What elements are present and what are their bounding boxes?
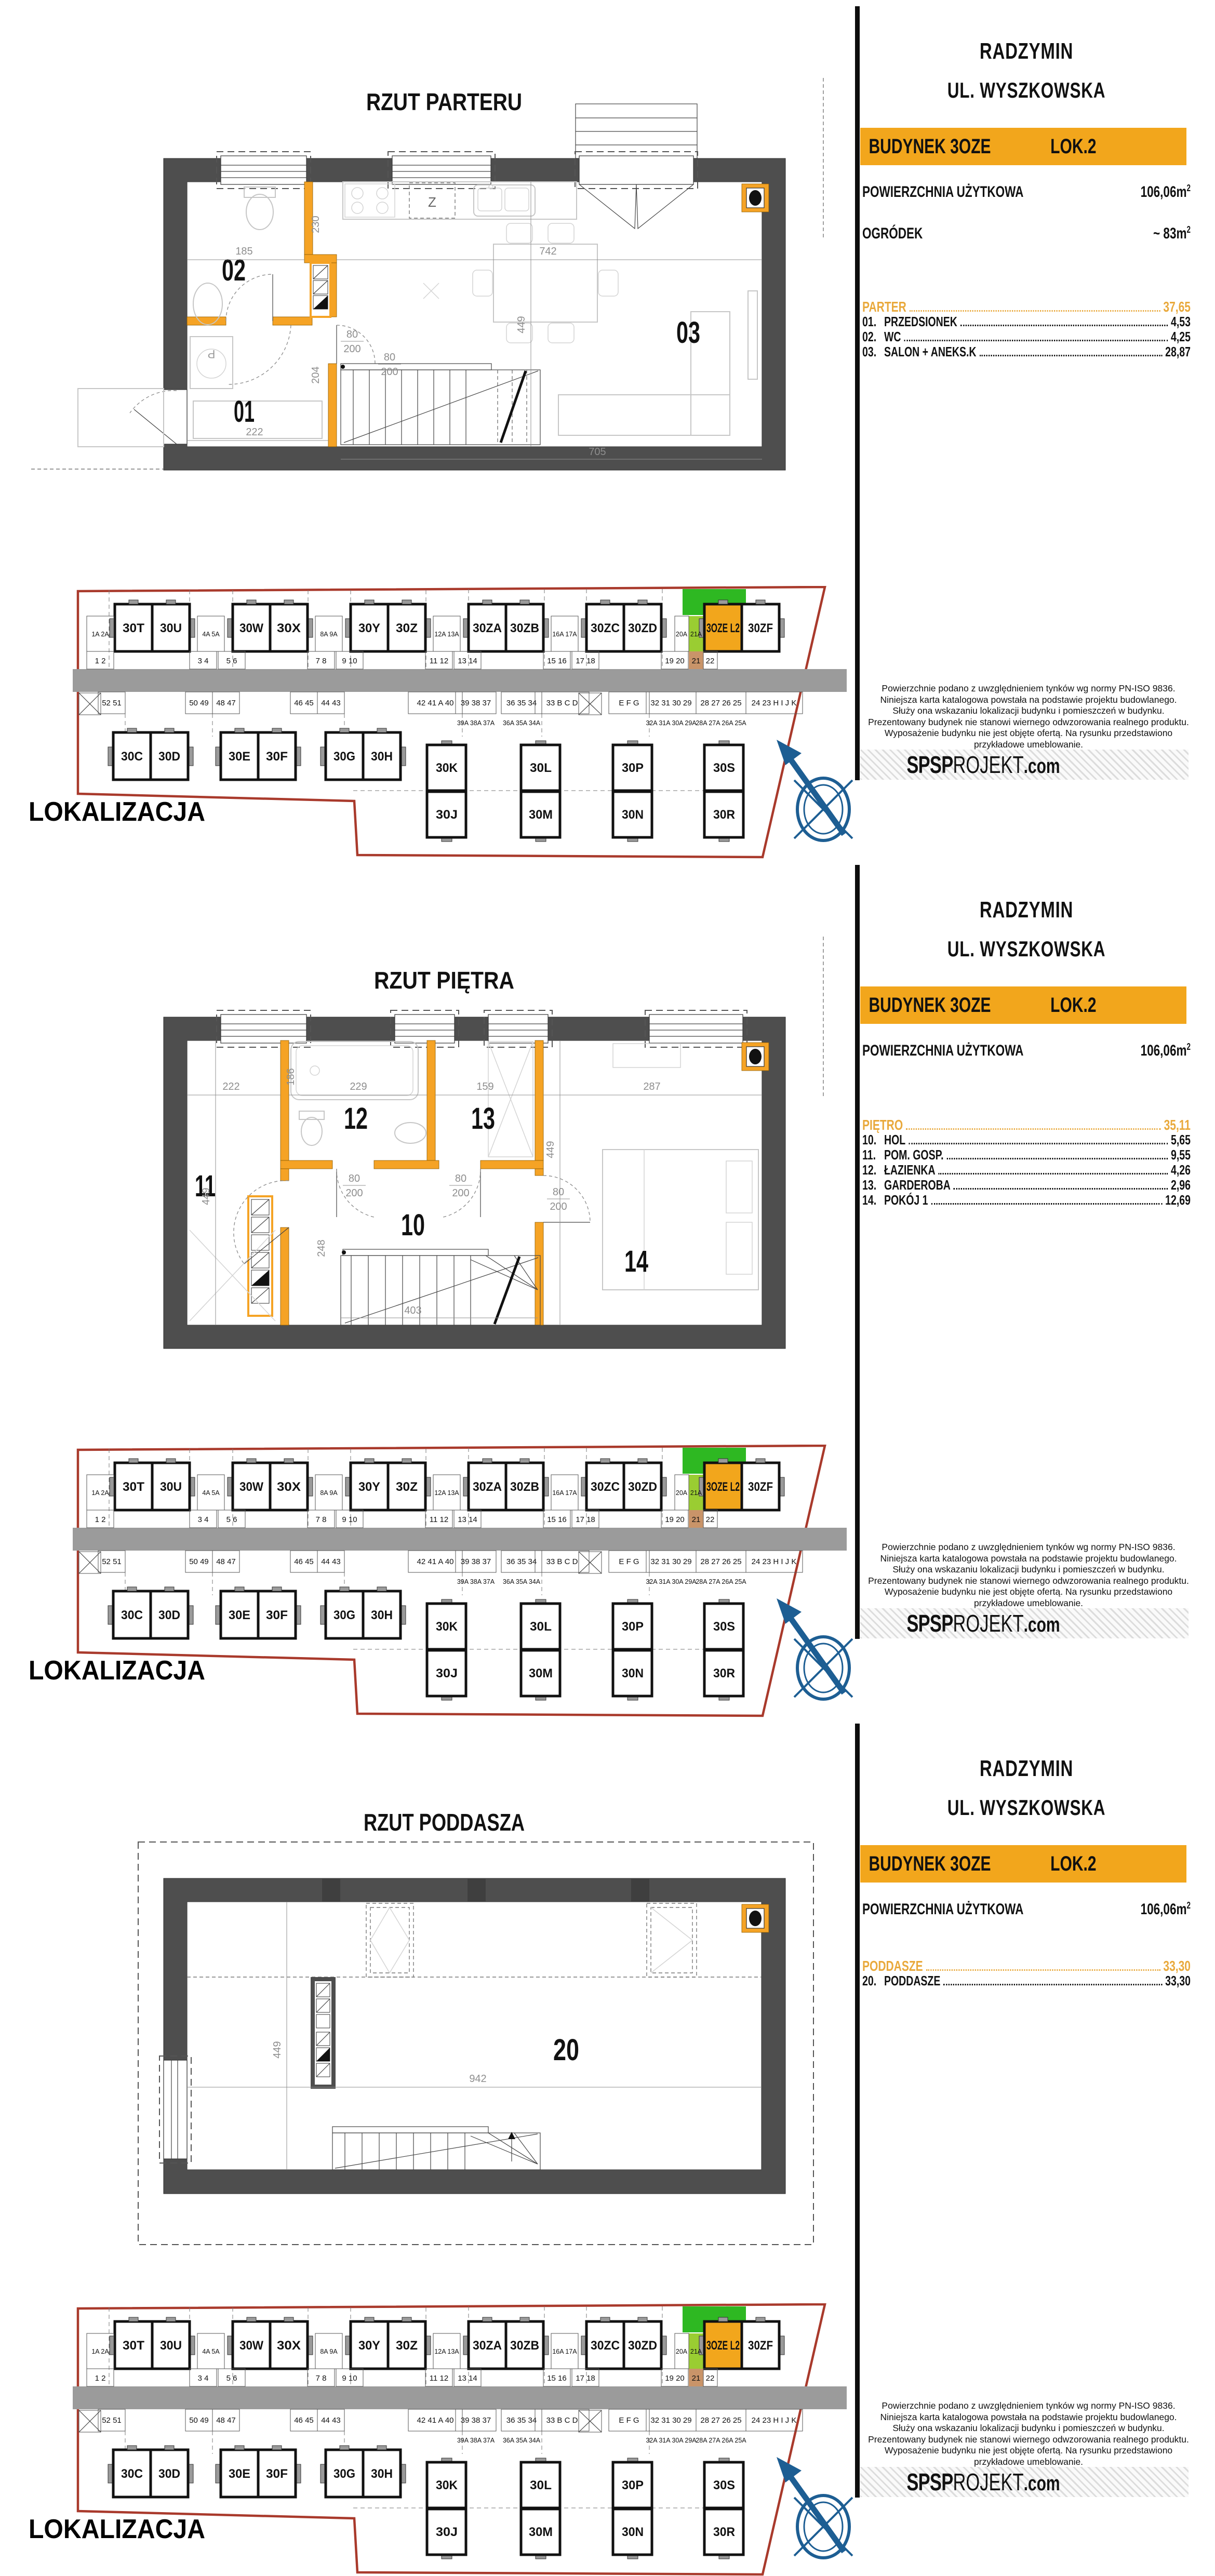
svg-text:30M: 30M [529,1666,553,1680]
street-title: UL. WYSZKOWSKA [947,1795,1105,1820]
city-title: RADZYMIN [980,1756,1073,1782]
svg-text:1 2: 1 2 [95,2374,106,2383]
stairs [341,1249,540,1325]
installation-shaft [311,1977,336,2089]
svg-text:20A: 20A [676,631,688,638]
svg-text:21: 21 [692,657,701,665]
svg-text:248: 248 [316,1239,327,1257]
svg-text:159: 159 [476,1081,493,1092]
svg-text:16A 17A: 16A 17A [552,1489,577,1497]
city-title: RADZYMIN [980,38,1073,64]
svg-text:30K: 30K [436,1620,458,1634]
usable-area-row: POWIERZCHNIA UŻYTKOWA106,06m2 [862,1042,1191,1060]
svg-text:80: 80 [384,352,395,363]
svg-text:4A 5A: 4A 5A [202,631,220,638]
furniture: Z P [190,182,757,438]
location-map: 30T 30U 30W 30X 30Y 30Z 30ZA 30ZB 30ZC 3… [0,586,857,859]
svg-text:7 8: 7 8 [316,657,327,665]
disclaimer: Powierzchnie podano z uwzględnieniem tyn… [860,683,1197,750]
svg-text:4A 5A: 4A 5A [202,1489,220,1497]
svg-text:30U: 30U [160,621,182,635]
chimney [742,1043,769,1071]
road [73,2386,847,2409]
svg-text:3 4: 3 4 [198,1515,209,1524]
svg-text:28A 27A 26A 25A: 28A 27A 26A 25A [696,719,746,727]
svg-text:30J: 30J [436,1666,458,1680]
room-label-02: 02 [222,253,246,287]
svg-text:3OZE L2: 3OZE L2 [706,621,740,635]
svg-text:30Z: 30Z [396,1480,418,1494]
garden-value: ~ 83m2 [1153,224,1191,243]
svg-text:30F: 30F [266,750,288,764]
svg-text:3 4: 3 4 [198,657,209,665]
svg-text:30N: 30N [622,1666,644,1680]
window [159,2056,191,2163]
svg-text:80: 80 [455,1173,466,1184]
plan-title: RZUT PIĘTRA [374,967,514,994]
partition-walls [281,1040,543,1325]
svg-text:7 8: 7 8 [316,1515,327,1524]
logo: SPSPROJEKT.com [860,750,1189,780]
logo: SPSPROJEKT.com [860,1608,1189,1638]
svg-text:30ZF: 30ZF [748,621,773,635]
garden-row: OGRÓDEK~ 83m2 [862,224,1191,243]
svg-text:30S: 30S [713,1620,735,1634]
usable-area-value: 106,06m2 [1141,183,1191,201]
svg-text:30R: 30R [713,2525,735,2539]
buildings-bottom-row: 30C 30D 30E 30F 30G 30H [108,2446,406,2497]
svg-text:742: 742 [539,246,556,257]
outer-walls [164,158,785,470]
panel-pietro: RZUT PIĘTRA [0,859,1215,1717]
svg-text:30S: 30S [713,761,735,775]
floor-plan-parter: RZUT PARTERU [0,0,857,582]
svg-text:8A 9A: 8A 9A [320,631,338,638]
svg-text:24 23 H I J K: 24 23 H I J K [752,699,797,708]
svg-text:13 14: 13 14 [458,2374,477,2383]
svg-text:30ZB: 30ZB [510,1480,539,1494]
svg-text:30W: 30W [239,1480,263,1494]
divider-line [855,865,860,1639]
svg-text:287: 287 [643,1081,660,1092]
usable-area-value: 106,06m2 [1141,1900,1191,1918]
svg-text:24 23 H I J K: 24 23 H I J K [752,2416,797,2425]
svg-text:44 43: 44 43 [321,1557,341,1566]
svg-text:80: 80 [349,1173,360,1184]
building-banner: BUDYNEK 3OZELOK.2 [860,986,1186,1024]
svg-text:22: 22 [706,1515,715,1524]
svg-text:30W: 30W [239,621,263,635]
room-label-20: 20 [553,2033,579,2067]
svg-text:942: 942 [469,2073,486,2085]
svg-text:20A: 20A [676,1489,688,1497]
usable-area-row: POWIERZCHNIA UŻYTKOWA106,06m2 [862,183,1191,201]
svg-text:30C: 30C [121,2467,143,2481]
location-map-slot: 30T 30U 30W 30X 30Y 30Z 30ZA 30ZB 30ZC 3… [0,1445,857,1717]
svg-text:200: 200 [345,1187,363,1199]
svg-text:Z: Z [428,194,436,210]
location-map-slot: 30T 30U 30W 30X 30Y 30Z 30ZA 30ZB 30ZC 3… [0,2303,857,2576]
svg-text:30P: 30P [622,761,644,775]
svg-text:30G: 30G [333,1608,355,1622]
svg-text:39 38 37: 39 38 37 [461,1557,491,1566]
svg-text:48 47: 48 47 [216,2416,236,2425]
buildings-bottom-row: 30C 30D 30E 30F 30G 30H [108,728,406,780]
street-title: UL. WYSZKOWSKA [947,937,1105,962]
svg-text:30E: 30E [229,750,250,764]
svg-text:17 18: 17 18 [576,1515,595,1524]
svg-text:17 18: 17 18 [576,657,595,665]
building-label: BUDYNEK 3OZE [869,135,991,158]
svg-text:200: 200 [343,343,361,355]
svg-text:39A 38A 37A: 39A 38A 37A [457,2437,495,2444]
unit-label: LOK.2 [1050,1852,1096,1876]
svg-text:230: 230 [310,216,322,233]
svg-text:12A 13A: 12A 13A [434,1489,459,1497]
svg-text:449: 449 [516,316,527,333]
svg-text:28 27 26 25: 28 27 26 25 [700,2416,741,2425]
svg-text:30Y: 30Y [358,2339,380,2353]
svg-text:30C: 30C [121,750,143,764]
svg-text:19 20: 19 20 [665,657,685,665]
svg-text:222: 222 [246,426,263,438]
svg-text:1A 2A: 1A 2A [91,1489,109,1497]
svg-text:5 6: 5 6 [226,657,237,665]
svg-text:52 51: 52 51 [102,1557,122,1566]
project-header: RADZYMIN UL. WYSZKOWSKA [862,897,1191,962]
svg-text:7 8: 7 8 [316,2374,327,2383]
svg-text:30D: 30D [158,1608,180,1622]
svg-text:28A 27A 26A 25A: 28A 27A 26A 25A [696,1578,746,1585]
svg-text:30Z: 30Z [396,621,418,635]
svg-text:21: 21 [692,1515,701,1524]
svg-text:30F: 30F [266,2467,288,2481]
svg-text:9 10: 9 10 [342,2374,357,2383]
svg-text:30N: 30N [622,2525,644,2539]
svg-text:4A 5A: 4A 5A [202,2348,220,2355]
terrace-door [575,152,698,229]
logo: SPSPROJEKT.com [860,2467,1189,2497]
svg-text:30Z: 30Z [396,2339,418,2353]
svg-text:30E: 30E [229,1608,250,1622]
svg-text:42 41 A 40: 42 41 A 40 [417,699,454,708]
svg-text:39 38 37: 39 38 37 [461,2416,491,2425]
svg-text:16A 17A: 16A 17A [552,2348,577,2355]
street-title: UL. WYSZKOWSKA [947,78,1105,103]
svg-text:30K: 30K [436,2478,458,2492]
svg-text:30E: 30E [229,2467,250,2481]
buildings-vertical-pairs: 30K 30J 30L 30M 30P 30N 30S 30R [427,1599,743,1700]
svg-text:705: 705 [589,446,606,458]
svg-text:30Y: 30Y [358,621,380,635]
location-map-slot: 30T 30U 30W 30X 30Y 30Z 30ZA 30ZB 30ZC 3… [0,586,857,859]
usable-area-row: POWIERZCHNIA UŻYTKOWA106,06m2 [862,1900,1191,1918]
svg-text:46 45: 46 45 [294,1557,314,1566]
svg-text:15 16: 15 16 [547,657,567,665]
project-header: RADZYMIN UL. WYSZKOWSKA [862,1756,1191,1820]
svg-text:30ZA: 30ZA [473,621,502,635]
svg-text:30C: 30C [121,1608,143,1622]
svg-text:30D: 30D [158,2467,180,2481]
stairs [332,2127,540,2170]
svg-text:42 41 A 40: 42 41 A 40 [417,2416,454,2425]
svg-text:22: 22 [706,657,715,665]
svg-text:30M: 30M [529,2525,553,2539]
svg-text:30P: 30P [622,1620,644,1634]
svg-text:30D: 30D [158,750,180,764]
svg-text:50 49: 50 49 [189,1557,209,1566]
floor-plan-poddasze: RZUT PODDASZA [0,1717,857,2299]
svg-text:30ZF: 30ZF [748,1480,773,1494]
disclaimer: Powierzchnie podano z uwzględnieniem tyn… [860,2400,1197,2467]
svg-text:46 45: 46 45 [294,2416,314,2425]
svg-text:30ZC: 30ZC [591,1480,620,1494]
svg-text:42 41 A 40: 42 41 A 40 [417,1557,454,1566]
svg-text:19 20: 19 20 [665,1515,685,1524]
building-label: BUDYNEK 3OZE [869,994,991,1017]
svg-text:19 20: 19 20 [665,2374,685,2383]
dimensions: 222 186 229 159 287 449 449 248 403 80 2… [187,1040,762,1325]
svg-text:16A 17A: 16A 17A [552,631,577,638]
svg-text:1 2: 1 2 [95,1515,106,1524]
room-label-14: 14 [624,1245,648,1278]
room-label-12: 12 [344,1102,368,1136]
installation-shaft [248,1196,272,1316]
svg-text:30K: 30K [436,761,458,775]
svg-text:28 27 26 25: 28 27 26 25 [700,699,741,708]
room-list: PARTER37,65 01.PRZEDSIONEK4,53 02.WC4,25… [862,299,1191,359]
compass-icon [777,2457,852,2558]
svg-text:200: 200 [452,1187,469,1199]
svg-text:186: 186 [285,1068,297,1085]
svg-text:20A: 20A [676,2348,688,2355]
svg-text:30H: 30H [371,2467,393,2481]
divider-line [855,6,860,780]
svg-text:200: 200 [381,366,398,378]
svg-text:E F G: E F G [619,699,639,708]
svg-text:30ZB: 30ZB [510,2339,539,2353]
svg-text:33 B C D: 33 B C D [546,699,578,708]
svg-text:39A 38A 37A: 39A 38A 37A [457,1578,495,1585]
buildings-vertical-pairs: 30K 30J 30L 30M 30P 30N 30S 30R [427,741,743,842]
svg-text:21: 21 [692,2374,701,2383]
svg-text:30T: 30T [123,1480,144,1494]
svg-text:21A: 21A [690,631,702,638]
svg-text:8A 9A: 8A 9A [320,2348,338,2355]
svg-text:30H: 30H [371,1608,393,1622]
svg-text:22: 22 [706,2374,715,2383]
svg-text:9 10: 9 10 [342,657,357,665]
svg-text:36A 35A 34A: 36A 35A 34A [503,2437,541,2444]
svg-text:30J: 30J [436,808,458,822]
svg-text:24 23 H I J K: 24 23 H I J K [752,1557,797,1566]
svg-text:30L: 30L [530,1620,552,1634]
svg-text:8A 9A: 8A 9A [320,1489,338,1497]
svg-text:46 45: 46 45 [294,699,314,708]
svg-text:403: 403 [404,1305,421,1316]
svg-text:11 12: 11 12 [430,2374,448,2383]
svg-text:11 12: 11 12 [430,657,448,665]
svg-text:11 12: 11 12 [430,1515,448,1524]
svg-text:36A 35A 34A: 36A 35A 34A [503,1578,541,1585]
svg-text:E F G: E F G [619,1557,639,1566]
svg-text:32 31 30 29: 32 31 30 29 [650,699,691,708]
parking-stalls-lower: 52 51 50 49 48 47 46 45 44 43 42 41 A 40… [98,1551,803,1585]
svg-text:13 14: 13 14 [458,657,477,665]
svg-text:12A 13A: 12A 13A [434,631,459,638]
compass-icon [777,740,852,840]
svg-text:30X: 30X [277,1480,301,1494]
plan-title: RZUT PARTERU [366,88,522,115]
svg-text:5 6: 5 6 [226,1515,237,1524]
outer-walls [164,1878,785,2194]
map-title: LOKALIZACJA [29,797,205,827]
svg-text:30ZF: 30ZF [748,2339,773,2353]
road [73,669,847,692]
svg-text:32 31 30 29: 32 31 30 29 [650,1557,691,1566]
svg-text:P: P [208,348,216,361]
svg-text:30L: 30L [530,761,552,775]
chimney [742,1904,769,1932]
svg-text:449: 449 [545,1141,556,1158]
road [73,1528,847,1551]
svg-text:44 43: 44 43 [321,699,341,708]
svg-text:30R: 30R [713,1666,735,1680]
svg-text:9 10: 9 10 [342,1515,357,1524]
svg-text:E F G: E F G [619,2416,639,2425]
project-header: RADZYMIN UL. WYSZKOWSKA [862,38,1191,103]
svg-text:36 35 34: 36 35 34 [506,2416,537,2425]
svg-text:30G: 30G [333,2467,355,2481]
svg-text:32A 31A 30A 29A: 32A 31A 30A 29A [646,719,697,727]
map-title: LOKALIZACJA [29,2514,205,2544]
room-label-01: 01 [234,395,255,429]
svg-text:36 35 34: 36 35 34 [506,1557,537,1566]
svg-text:32 31 30 29: 32 31 30 29 [650,2416,691,2425]
svg-text:1A 2A: 1A 2A [91,2348,109,2355]
svg-text:30ZD: 30ZD [628,1480,657,1494]
svg-text:229: 229 [350,1081,367,1092]
svg-text:30L: 30L [530,2478,552,2492]
building-label: BUDYNEK 3OZE [869,1852,991,1876]
room-list: PIĘTRO35,11 10.HOL5,65 11.POM. GOSP.9,55… [862,1117,1191,1207]
svg-text:30ZA: 30ZA [473,2339,502,2353]
svg-text:32A 31A 30A 29A: 32A 31A 30A 29A [646,2437,697,2444]
svg-text:50 49: 50 49 [189,2416,209,2425]
svg-text:48 47: 48 47 [216,1557,236,1566]
svg-text:36 35 34: 36 35 34 [506,699,537,708]
svg-text:30T: 30T [123,2339,144,2353]
svg-text:30S: 30S [713,2478,735,2492]
buildings-vertical-pairs: 30K 30J 30L 30M 30P 30N 30S 30R [427,2458,743,2559]
svg-text:30M: 30M [529,808,553,822]
svg-text:30T: 30T [123,621,144,635]
svg-text:185: 185 [235,246,252,257]
svg-text:3OZE L2: 3OZE L2 [706,1480,740,1494]
svg-text:1 2: 1 2 [95,657,106,665]
svg-text:30N: 30N [622,808,644,822]
room-label-03: 03 [676,316,700,350]
usable-area-value: 106,06m2 [1141,1042,1191,1060]
canopy [576,104,697,158]
svg-text:17 18: 17 18 [576,2374,595,2383]
chimney [742,184,769,212]
svg-text:30W: 30W [239,2339,263,2353]
svg-text:32A 31A 30A 29A: 32A 31A 30A 29A [646,1578,697,1585]
svg-text:13 14: 13 14 [458,1515,477,1524]
svg-text:30U: 30U [160,2339,182,2353]
svg-text:30ZD: 30ZD [628,2339,657,2353]
svg-text:204: 204 [310,366,322,383]
disclaimer: Powierzchnie podano z uwzględnieniem tyn… [860,1542,1197,1609]
svg-text:30X: 30X [277,2339,301,2353]
svg-text:449: 449 [201,1187,212,1205]
svg-text:36A 35A 34A: 36A 35A 34A [503,719,541,727]
unit-label: LOK.2 [1050,994,1096,1017]
svg-text:30X: 30X [277,621,301,635]
room-label-10: 10 [401,1208,425,1242]
svg-text:222: 222 [222,1081,239,1092]
city-title: RADZYMIN [980,897,1073,923]
svg-text:15 16: 15 16 [547,1515,567,1524]
building-banner: BUDYNEK 3OZELOK.2 [860,128,1186,165]
svg-text:3OZE L2: 3OZE L2 [706,2339,740,2353]
svg-text:52 51: 52 51 [102,2416,122,2425]
svg-text:3 4: 3 4 [198,2374,209,2383]
svg-text:33 B C D: 33 B C D [546,1557,578,1566]
svg-text:30Y: 30Y [358,1480,380,1494]
stairs [341,364,540,445]
svg-text:30P: 30P [622,2478,644,2492]
svg-text:80: 80 [553,1186,564,1198]
svg-text:30ZA: 30ZA [473,1480,502,1494]
compass-icon [777,1598,852,1699]
buildings-bottom-row: 30C 30D 30E 30F 30G 30H [108,1587,406,1638]
svg-text:30J: 30J [436,2525,458,2539]
panel-parter: RZUT PARTERU [0,0,1215,859]
svg-text:15 16: 15 16 [547,2374,567,2383]
svg-text:21A: 21A [690,2348,702,2355]
svg-text:449: 449 [272,2041,283,2058]
room-label-13: 13 [471,1102,495,1136]
svg-text:39 38 37: 39 38 37 [461,699,491,708]
parking-stalls-lower: 52 51 50 49 48 47 46 45 44 43 42 41 A 40… [98,2409,803,2444]
svg-text:52 51: 52 51 [102,699,122,708]
svg-text:30H: 30H [371,750,393,764]
svg-text:28A 27A 26A 25A: 28A 27A 26A 25A [696,2437,746,2444]
svg-text:44 43: 44 43 [321,2416,341,2425]
panel-poddasze: RZUT PODDASZA [0,1717,1215,2576]
svg-text:30ZB: 30ZB [510,621,539,635]
svg-text:50 49: 50 49 [189,699,209,708]
parking-stalls-lower: 52 51 50 49 48 47 46 45 44 43 42 41 A 40… [98,692,803,727]
svg-text:1A 2A: 1A 2A [91,631,109,638]
svg-text:21A: 21A [690,1489,702,1497]
svg-text:30ZD: 30ZD [628,621,657,635]
svg-text:200: 200 [550,1201,567,1212]
roof-window [366,1903,697,1977]
unit-label: LOK.2 [1050,135,1096,158]
entrance-door [31,78,823,469]
svg-text:80: 80 [346,329,358,340]
svg-text:30ZC: 30ZC [591,2339,620,2353]
svg-text:33 B C D: 33 B C D [546,2416,578,2425]
map-title: LOKALIZACJA [29,1656,205,1686]
building-banner: BUDYNEK 3OZELOK.2 [860,1845,1186,1883]
svg-text:30U: 30U [160,1480,182,1494]
location-map: 30T 30U 30W 30X 30Y 30Z 30ZA 30ZB 30ZC 3… [0,2303,857,2576]
plan-title: RZUT PODDASZA [364,1809,525,1836]
